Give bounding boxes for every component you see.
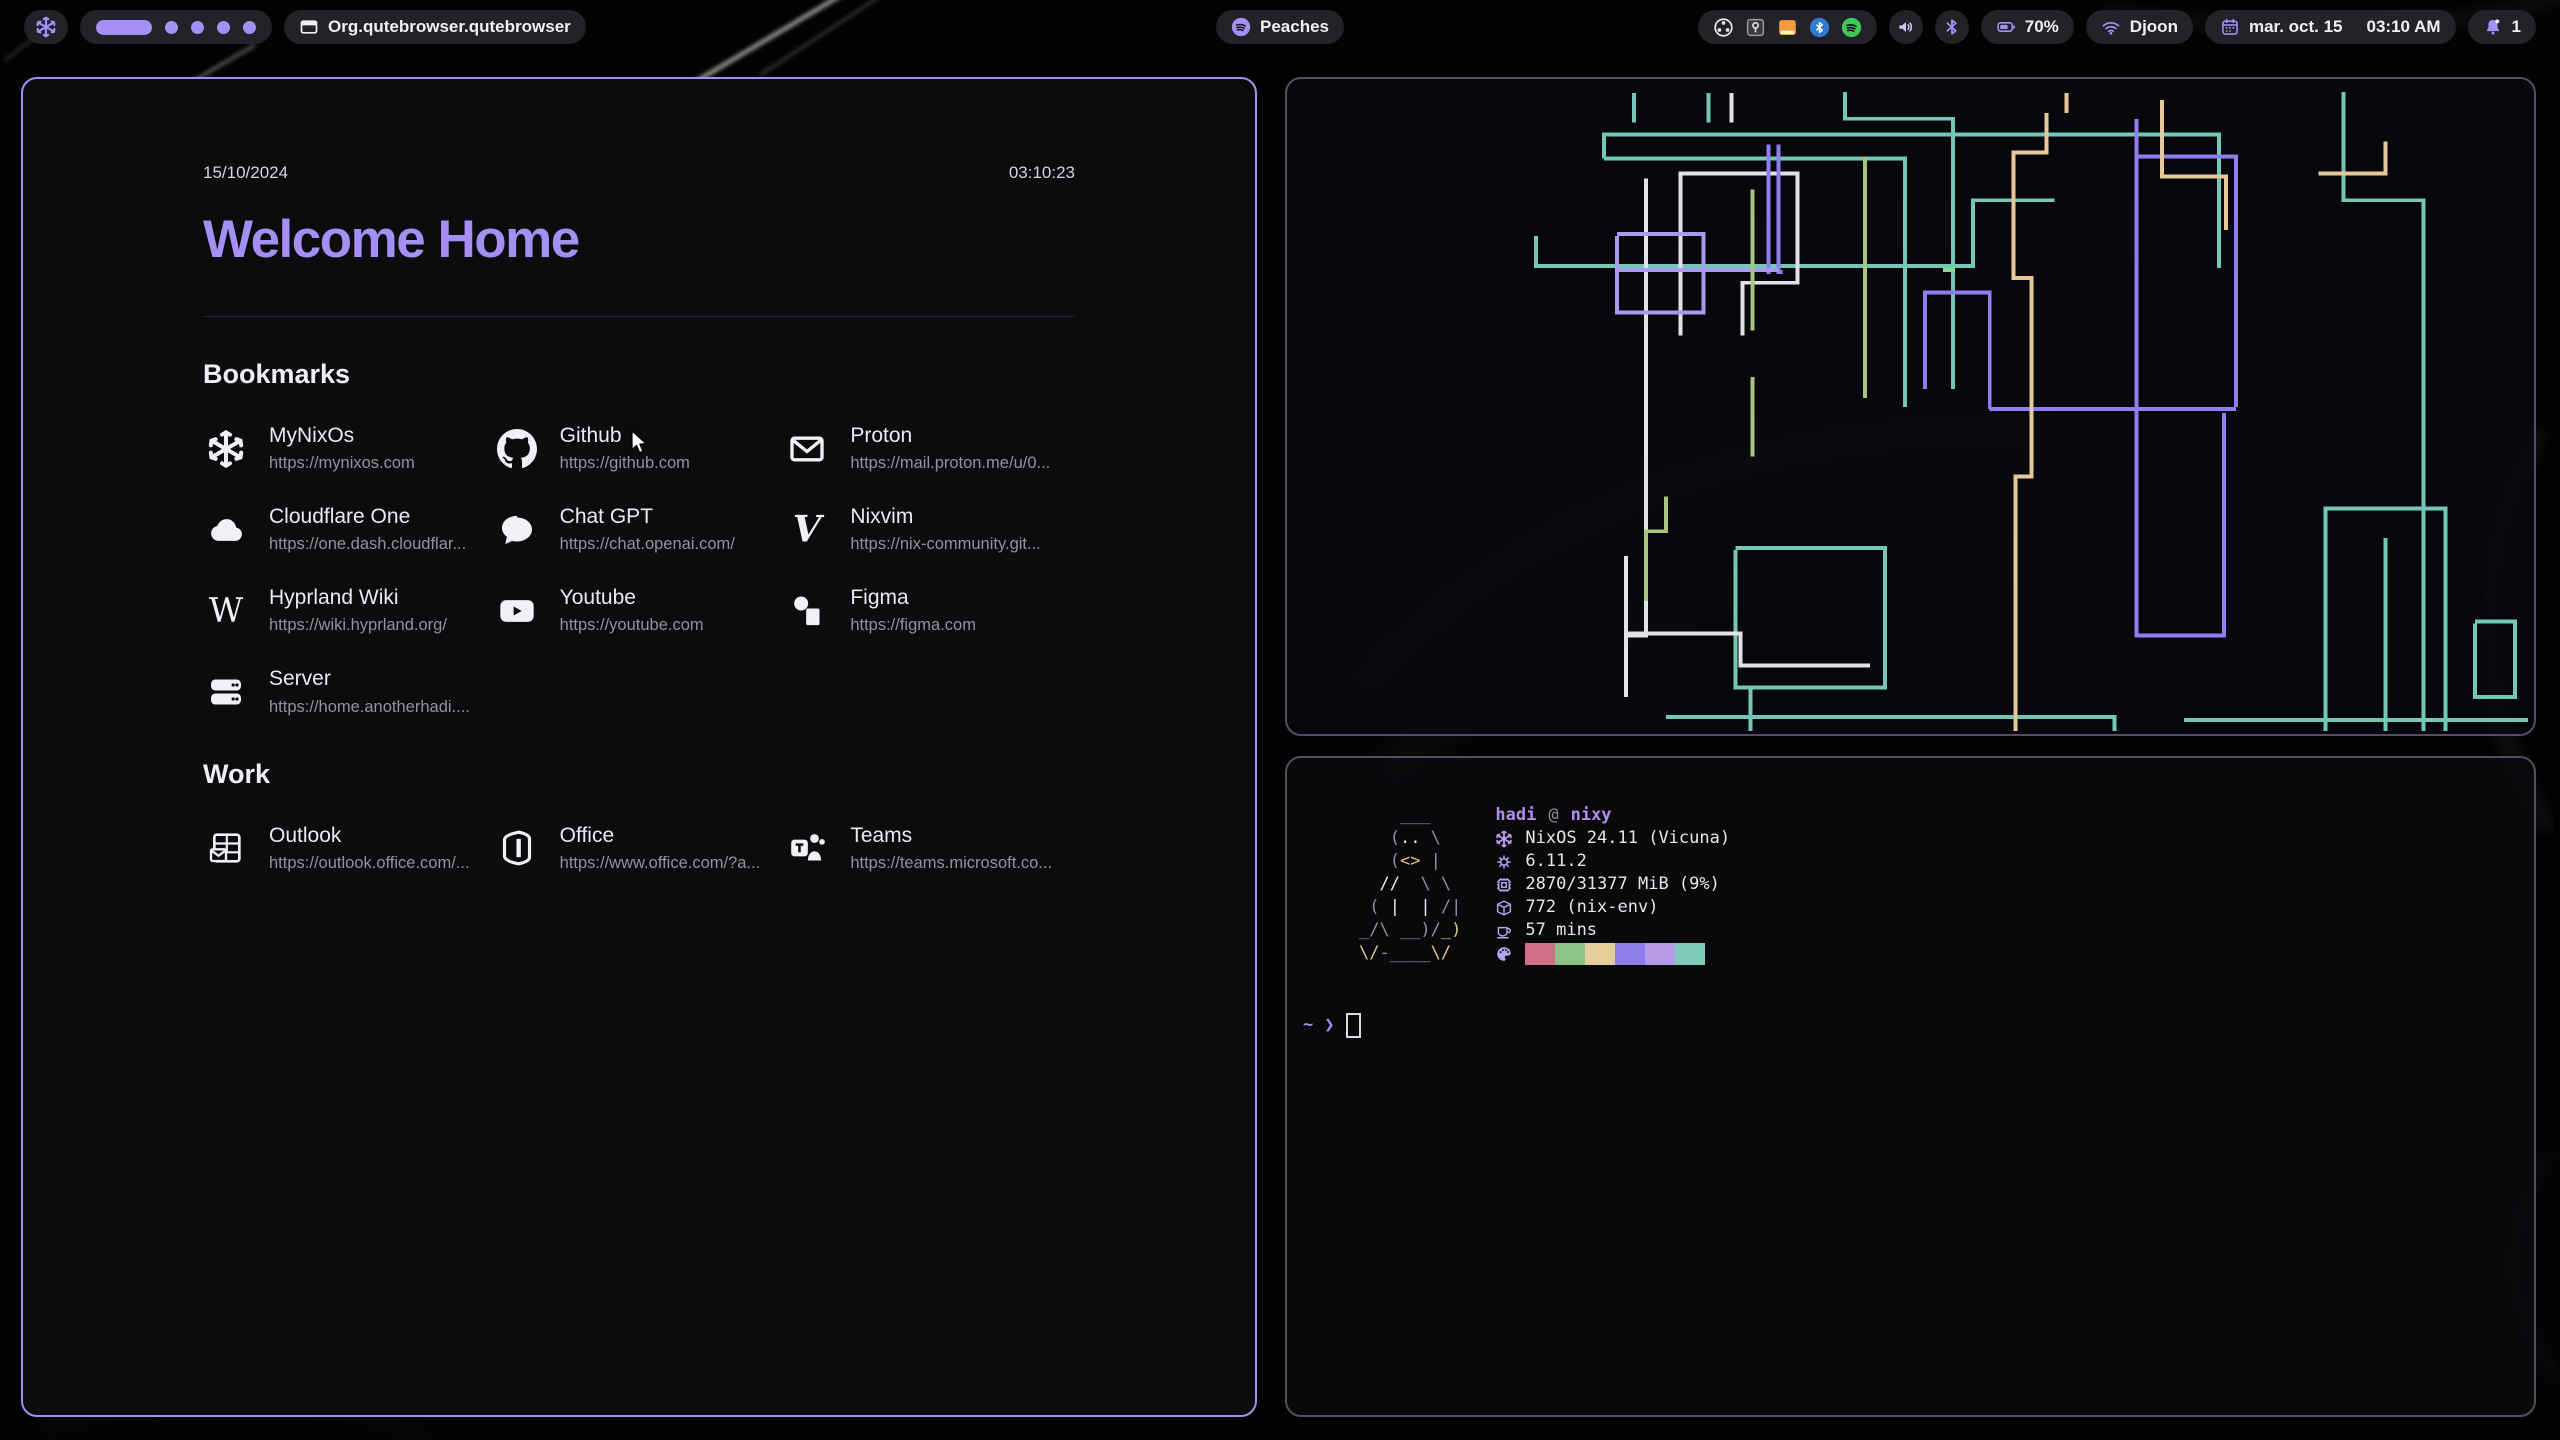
bookmark-name: Office [560,824,761,848]
palette-swatch [1585,943,1615,965]
fetch-value: 57 mins [1525,919,1597,942]
workspace-2[interactable] [165,21,178,34]
clock-button[interactable]: mar. oct. 15 03:10 AM [2205,10,2456,44]
workspace-4[interactable] [217,21,230,34]
vim-icon [787,510,827,550]
calendar-icon [2220,17,2240,37]
nixos-icon [203,426,249,472]
bookmark-url: https://youtube.com [560,616,704,635]
fetch-row-nixos: NixOS 24.11 (Vicuna) [1495,827,1730,850]
notifications-button[interactable]: 1 [2468,10,2536,44]
links-grid: Outlookhttps://outlook.office.com/...Off… [203,824,1075,873]
obs-icon[interactable] [1713,17,1734,38]
startpage-date: 15/10/2024 [203,163,288,183]
mail-icon [787,429,827,469]
cloud-icon [203,507,249,553]
bookmark-url: https://github.com [560,454,690,473]
bookmark-outlook[interactable]: Outlookhttps://outlook.office.com/... [203,824,494,873]
palette-swatch [1615,943,1645,965]
bookmark-chat-gpt[interactable]: Chat GPThttps://chat.openai.com/ [494,505,785,554]
bookmark-name: Outlook [269,824,470,848]
prompt-cwd: ~ [1303,1014,1313,1037]
bluetooth-button[interactable] [1935,10,1969,44]
fetch-at: @ [1548,804,1558,827]
office-icon [497,828,537,868]
section-title: Bookmarks [203,359,1075,390]
bookmark-name: Server [269,667,470,691]
bookmark-name: Nixvim [850,505,1040,529]
palette-swatch [1525,943,1555,965]
workspaces[interactable] [80,10,272,44]
nixos-icon [206,429,246,469]
fetch-value: 772 (nix-env) [1525,896,1658,919]
bookmark-hyprland-wiki[interactable]: Hyprland Wikihttps://wiki.hyprland.org/ [203,586,494,635]
fetch-row-kernel: 6.11.2 [1495,850,1730,873]
media-track-title: Peaches [1260,17,1329,37]
bookmark-name: Github [560,424,690,448]
workspace-5[interactable] [243,21,256,34]
youtube-icon [497,591,537,631]
bookmark-name: Figma [850,586,976,610]
bookmark-server[interactable]: Serverhttps://home.anotherhadi.... [203,667,494,716]
github-icon [494,426,540,472]
cloud-icon [206,510,246,550]
mail-icon [784,426,830,472]
bookmark-name: Youtube [560,586,704,610]
bookmark-youtube[interactable]: Youtubehttps://youtube.com [494,586,785,635]
bookmark-url: https://chat.openai.com/ [560,535,735,554]
bookmark-url: https://mynixos.com [269,454,415,473]
fetch-value: NixOS 24.11 (Vicuna) [1525,827,1730,850]
fetch-info-rows: NixOS 24.11 (Vicuna)6.11.22870/31377 MiB… [1495,827,1730,942]
nixos-logo-icon [35,16,57,38]
bookmark-url: https://one.dash.cloudflar... [269,535,466,554]
clock-date: mar. oct. 15 [2249,17,2343,37]
uptime-icon [1495,922,1513,940]
launcher-button[interactable] [24,10,68,44]
active-window-title: Org.qutebrowser.qutebrowser [328,17,571,37]
youtube-icon [494,588,540,634]
palette-swatch [1555,943,1585,965]
bookmark-office[interactable]: Officehttps://www.office.com/?a... [494,824,785,873]
bookmark-url: https://nix-community.git... [850,535,1040,554]
links-grid: MyNixOshttps://mynixos.comGithubhttps://… [203,424,1075,717]
chat-icon [494,507,540,553]
palette-icon [1495,945,1513,963]
vim-icon [784,507,830,553]
bookmark-url: https://mail.proton.me/u/0... [850,454,1050,473]
network-ssid: Djoon [2130,17,2178,37]
browser-window[interactable]: 15/10/2024 03:10:23 Welcome Home Bookmar… [21,77,1257,1417]
bookmark-url: https://www.office.com/?a... [560,854,761,873]
wifi-icon [2101,17,2121,37]
bell-icon [2483,17,2503,37]
speaker-icon [1896,17,1916,37]
fetch-host: nixy [1571,804,1612,827]
volume-button[interactable] [1889,10,1923,44]
server-icon [203,669,249,715]
fetch-palette-row [1495,942,1730,965]
palette-swatch [1675,943,1705,965]
pipes-terminal-window[interactable] [1285,77,2536,736]
media-player-button[interactable]: Peaches [1216,10,1344,44]
chat-icon [497,510,537,550]
shell-prompt[interactable]: ~ ❯ [1303,1013,2534,1038]
wikipedia-icon [206,591,246,631]
battery-icon [1996,17,2016,37]
spotify-icon[interactable] [1841,17,1862,38]
wikipedia-icon [203,588,249,634]
terminal-palette [1525,943,1705,965]
fetch-user: hadi [1495,804,1536,827]
user-host: hadi@nixy [1495,804,1730,827]
workspace-3[interactable] [191,21,204,34]
files-icon[interactable] [1777,17,1798,38]
system-tray [1698,10,1877,44]
fetch-row-uptime: 57 mins [1495,919,1730,942]
bookmark-teams[interactable]: Teamshttps://teams.microsoft.co... [784,824,1075,873]
mouse-cursor [630,430,654,454]
kernel-icon [1495,853,1513,871]
startpage-time: 03:10:23 [1009,163,1075,183]
window-icon [299,17,319,37]
bookmark-url: https://home.anotherhadi.... [269,698,470,717]
bookmark-name: Chat GPT [560,505,735,529]
bookmark-name: MyNixOs [269,424,415,448]
office-icon [494,825,540,871]
fetch-value: 2870/31377 MiB (9%) [1525,873,1719,896]
prompt-arrow: ❯ [1324,1014,1334,1037]
bookmark-name: Hyprland Wiki [269,586,447,610]
network-indicator[interactable]: Djoon [2086,10,2193,44]
workspace-1-active[interactable] [96,20,152,35]
bookmark-url: https://figma.com [850,616,976,635]
spotify-icon [1231,17,1251,37]
terminal-cursor [1346,1013,1361,1038]
battery-indicator[interactable]: 70% [1981,10,2074,44]
bookmark-name: Teams [850,824,1052,848]
palette-swatch [1645,943,1675,965]
bookmark-name: Cloudflare One [269,505,466,529]
bookmark-url: https://teams.microsoft.co... [850,854,1052,873]
bookmark-mynixos[interactable]: MyNixOshttps://mynixos.com [203,424,494,473]
active-window-button[interactable]: Org.qutebrowser.qutebrowser [284,10,586,44]
server-icon [206,672,246,712]
fetch-value: 6.11.2 [1525,850,1586,873]
fetch-row-memory: 2870/31377 MiB (9%) [1495,873,1730,896]
bookmark-proton[interactable]: Protonhttps://mail.proton.me/u/0... [784,424,1075,473]
nixos-icon [1495,830,1513,848]
bookmark-url: https://wiki.hyprland.org/ [269,616,447,635]
teams-icon [784,825,830,871]
figma-icon [784,588,830,634]
packages-icon [1495,899,1513,917]
pipes-screensaver [1287,79,2534,734]
outlook-icon [203,825,249,871]
fetch-row-packages: 772 (nix-env) [1495,896,1730,919]
battery-percent: 70% [2025,17,2059,37]
bookmark-name: Proton [850,424,1050,448]
memory-icon [1495,876,1513,894]
status-bar: Org.qutebrowser.qutebrowser Peaches 70% … [24,10,2536,44]
section-title: Work [203,759,1075,790]
btbadge-icon[interactable] [1809,17,1830,38]
bookmark-cloudflare-one[interactable]: Cloudflare Onehttps://one.dash.cloudflar… [203,505,494,554]
clock-time: 03:10 AM [2367,17,2441,37]
page-title: Welcome Home [203,209,1075,270]
notification-count: 1 [2512,17,2521,37]
fetch-terminal-window[interactable]: ___ (.. \ (<> | // \ \ ( | | /|_/\ __)/_… [1285,756,2536,1417]
github-icon [497,429,537,469]
divider [203,316,1075,317]
figma-icon [787,591,827,631]
bookmark-figma[interactable]: Figmahttps://figma.com [784,586,1075,635]
tux-ascii-art: ___ (.. \ (<> | // \ \ ( | | /|_/\ __)/_… [1303,804,1461,965]
bookmark-url: https://outlook.office.com/... [269,854,470,873]
keepassxc-icon[interactable] [1745,17,1766,38]
teams-icon [787,828,827,868]
outlook-icon [206,828,246,868]
bookmark-nixvim[interactable]: Nixvimhttps://nix-community.git... [784,505,1075,554]
bluetooth-icon [1942,17,1962,37]
